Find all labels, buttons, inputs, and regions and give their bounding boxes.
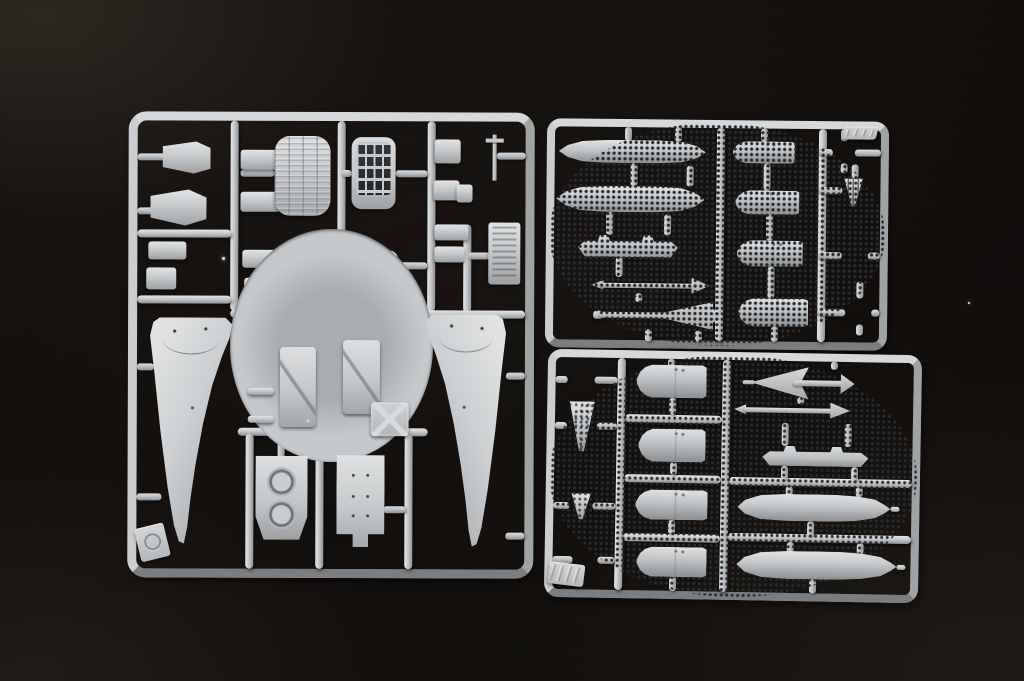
runner (137, 229, 231, 237)
avionics-bay-box (488, 223, 520, 285)
equipment-bay-panel (336, 455, 384, 547)
stores-sprue-upper (545, 118, 889, 351)
gate-stub (506, 373, 525, 380)
dust-speck (222, 257, 225, 260)
delta-finned-missile (742, 366, 859, 400)
avionics-box (435, 139, 461, 163)
gate-stub (137, 363, 154, 370)
small-bracket (146, 267, 176, 289)
sprue-corner-tag (547, 561, 585, 587)
gate-stub (855, 149, 881, 156)
sprue-corner-tag (842, 126, 879, 139)
bomb-half-shell (635, 489, 708, 520)
runner (230, 121, 239, 311)
tank-tail-nub (896, 565, 905, 570)
bomb-half-shell (636, 364, 707, 398)
gate-stub (138, 153, 166, 160)
twin-intake-engine-block (255, 456, 307, 540)
tank-tail-nub (890, 507, 899, 512)
gate-stub (556, 376, 568, 383)
dust-speck (307, 420, 309, 422)
gate-stub (383, 506, 405, 513)
slender-rocket (734, 401, 854, 419)
gate-stub (856, 324, 863, 335)
bomb-half-shell (638, 428, 706, 462)
gate-stub (871, 310, 879, 317)
corrugated-intake-duct (274, 136, 330, 216)
runner (404, 434, 412, 569)
small-bracket (434, 246, 464, 262)
slotted-grille-panel (351, 137, 395, 209)
small-bracket (434, 224, 468, 240)
small-linkage (248, 416, 274, 423)
small-linkage (248, 388, 274, 395)
gate-stub (505, 533, 524, 540)
missile-tail-fin (840, 374, 854, 394)
gate-stub (136, 493, 161, 500)
gate-stub (342, 170, 352, 177)
gate-stub (497, 153, 526, 160)
stores-sprue-lower (544, 349, 922, 603)
small-bracket (148, 241, 186, 259)
cockpit-console-panel (280, 347, 316, 427)
gate-stub (396, 170, 428, 177)
runner (137, 295, 231, 303)
gate-stub (468, 252, 490, 259)
gate-stub (241, 170, 275, 177)
airframe-sprue (127, 111, 535, 578)
rocket-tail-fin (830, 403, 850, 419)
bomb-half-shell (636, 546, 707, 577)
pitot-probe (493, 135, 497, 181)
rocket-body (744, 407, 834, 414)
photo-of-model-kit-sprues (0, 0, 1024, 681)
dust-speck (968, 302, 970, 304)
runner (245, 434, 253, 569)
small-fitting (456, 184, 472, 202)
x-braced-access-hatch (371, 402, 409, 436)
